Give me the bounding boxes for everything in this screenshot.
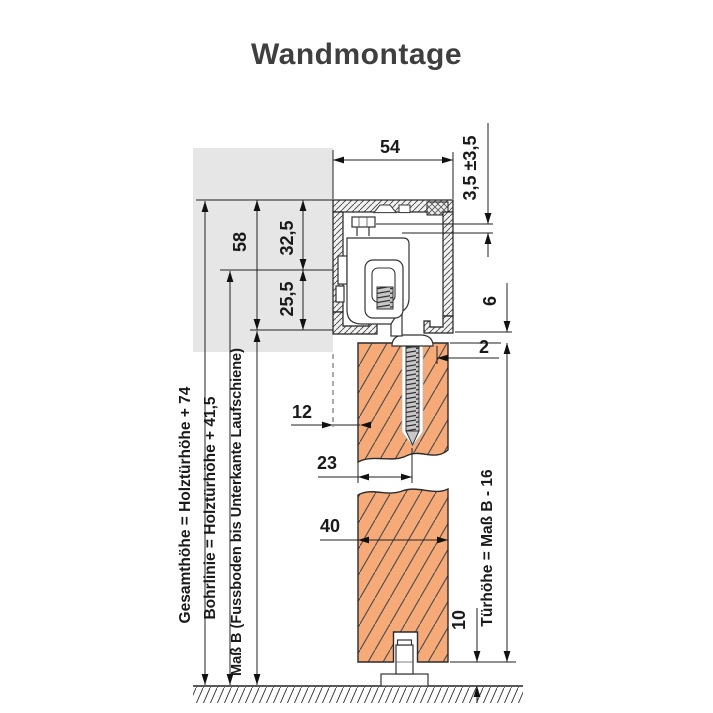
dim-face-to-screw: 23 [317, 453, 337, 473]
floor-hatch [193, 687, 523, 703]
dim-top-to-bohrlinie: 32,5 [277, 220, 297, 255]
adjustment-bolt-head [352, 217, 375, 227]
track-bottom-right-flange [424, 316, 453, 333]
track-front-wall [443, 212, 453, 316]
carriage [336, 217, 409, 336]
label-bohrlinie: Bohrlinie = Holztürhöhe + 41,5 [202, 396, 219, 619]
dim-track-width: 54 [380, 137, 400, 157]
dim-floor-gap: 10 [449, 610, 469, 630]
floor [193, 686, 523, 703]
dim-door-thickness: 40 [320, 516, 340, 536]
label-gesamthoehe: Gesamthöhe = Holztürhöhe + 74 [177, 386, 194, 623]
dim-track-door-gap: 6 [480, 296, 500, 306]
dim-height-adjust: 3,5 ±3,5 [460, 136, 480, 201]
wall-section [193, 148, 333, 352]
screw-head [392, 335, 433, 346]
door-panel-upper [358, 335, 448, 462]
wall-mount-diagram: 54 3,5 ±3,5 58 32,5 25,5 6 2 12 23 40 10… [0, 0, 713, 713]
label-tuerhoehe: Türhöhe = Maß B - 16 [479, 469, 496, 627]
dim-gap-2: 2 [479, 337, 489, 357]
adjustment-thread [377, 287, 393, 309]
dim-wall-to-door: 12 [292, 402, 312, 422]
label-mass-b: Maß B (Fussboden bis Unterkante Laufschi… [229, 348, 245, 676]
door-panel-lower [358, 489, 448, 662]
dim-track-height: 58 [230, 232, 250, 252]
dim-bohrlinie-to-bottom: 25,5 [277, 281, 297, 316]
